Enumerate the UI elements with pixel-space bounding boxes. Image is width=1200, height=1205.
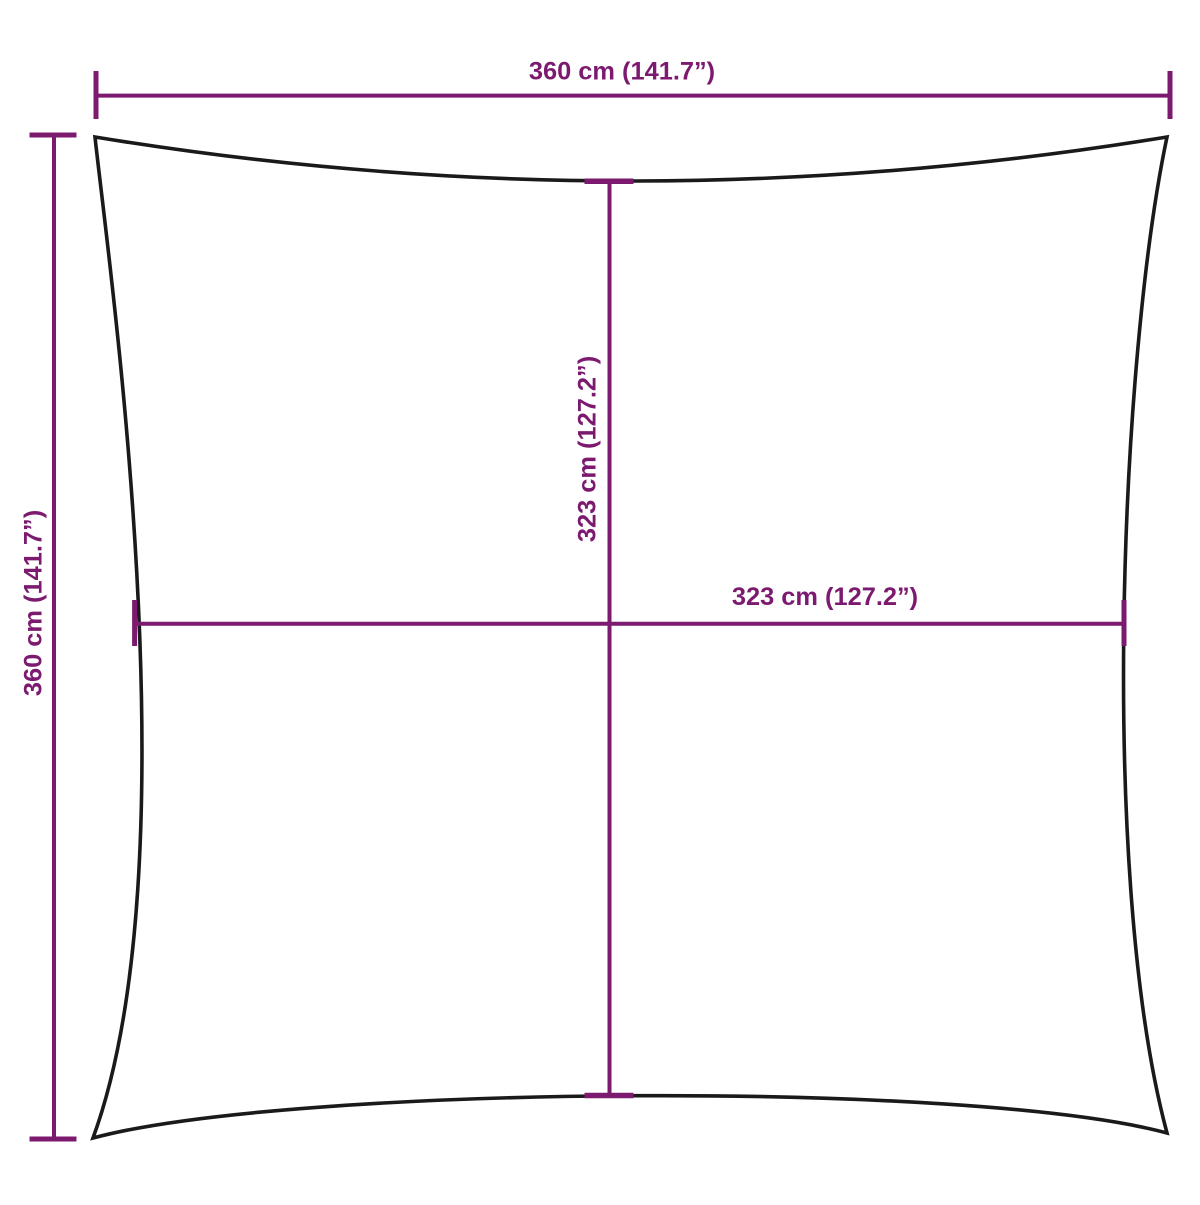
svg-text:360 cm (141.7”): 360 cm (141.7”) — [529, 58, 715, 86]
svg-text:360 cm (141.7”): 360 cm (141.7”) — [20, 510, 48, 696]
svg-text:323 cm (127.2”): 323 cm (127.2”) — [573, 356, 601, 542]
svg-text:323 cm (127.2”): 323 cm (127.2”) — [732, 583, 918, 611]
